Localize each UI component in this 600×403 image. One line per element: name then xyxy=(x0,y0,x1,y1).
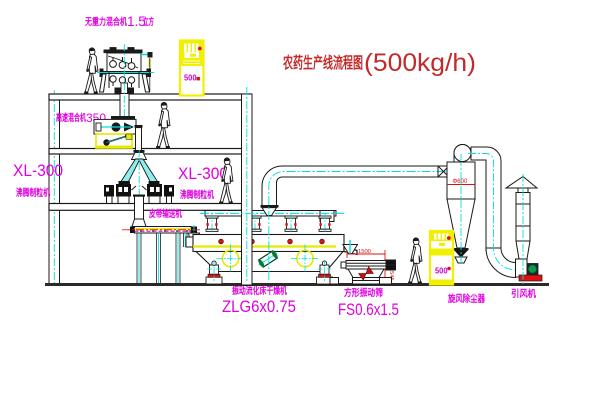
svg-text:旋风除尘器: 旋风除尘器 xyxy=(447,293,485,305)
svg-text:1500: 1500 xyxy=(358,249,371,255)
svg-text:沸腾制粒机: 沸腾制粒机 xyxy=(16,187,50,199)
svg-text:高速混合机: 高速混合机 xyxy=(56,112,86,124)
svg-text:方形振动筛: 方形振动筛 xyxy=(344,287,383,299)
svg-text:FS0.6x1.5: FS0.6x1.5 xyxy=(338,301,399,319)
svg-text:ZLG6x0.75: ZLG6x0.75 xyxy=(222,298,296,316)
svg-text:Φ600: Φ600 xyxy=(453,179,468,185)
svg-text:500: 500 xyxy=(184,74,197,83)
svg-text:(500kg/h): (500kg/h) xyxy=(364,49,476,77)
svg-text:XL-300: XL-300 xyxy=(13,161,63,180)
svg-text:立方: 立方 xyxy=(143,16,154,28)
svg-text:无重力混合机: 无重力混合机 xyxy=(84,16,127,28)
svg-text:引风机: 引风机 xyxy=(511,288,536,300)
svg-text:XL-300: XL-300 xyxy=(178,164,228,183)
svg-text:沸腾制粒机: 沸腾制粒机 xyxy=(180,189,214,201)
svg-text:振动流化床干燥机: 振动流化床干燥机 xyxy=(232,285,287,297)
svg-text:500: 500 xyxy=(435,267,448,276)
svg-text:皮带输送机: 皮带输送机 xyxy=(148,208,182,220)
svg-text:农药生产线流程图: 农药生产线流程图 xyxy=(282,53,363,72)
